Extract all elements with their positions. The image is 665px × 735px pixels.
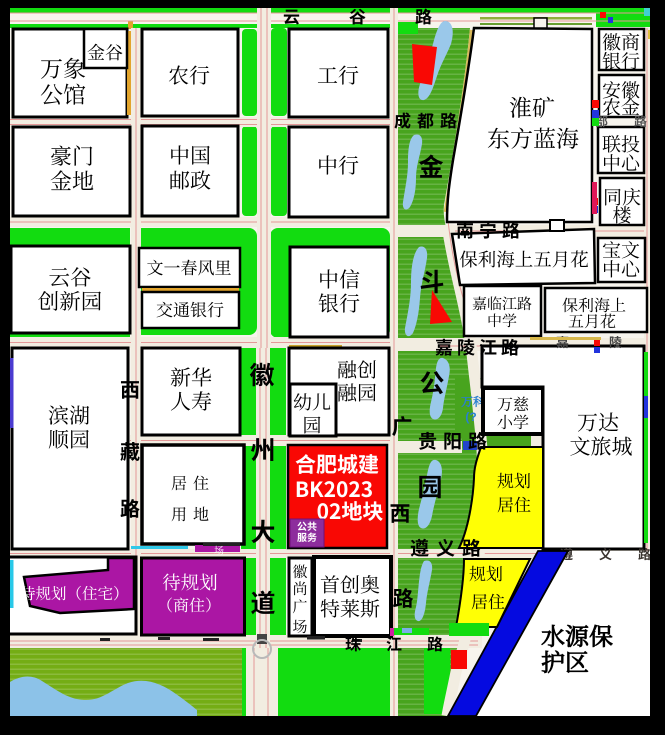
svg-text:公馆: 公馆: [40, 77, 86, 110]
svg-text:嘉陵江路: 嘉陵江路: [435, 334, 523, 360]
svg-text:遵义路: 遵义路: [560, 544, 665, 563]
svg-text:用地: 用地: [171, 502, 215, 525]
svg-text:中行: 中行: [317, 150, 359, 180]
svg-text:遵义路: 遵义路: [410, 534, 488, 561]
svg-text:待规划: 待规划: [162, 569, 218, 595]
svg-text:人寿: 人寿: [170, 386, 212, 416]
svg-text:文旅城: 文旅城: [570, 431, 633, 461]
svg-text:道: 道: [250, 584, 275, 620]
svg-text:藏: 藏: [120, 436, 140, 465]
svg-text:斗: 斗: [419, 263, 444, 299]
svg-text:保利海上五月花: 保利海上五月花: [459, 246, 589, 272]
svg-text:东方蓝海: 东方蓝海: [487, 121, 579, 154]
svg-text:贵阳路: 贵阳路: [418, 427, 493, 454]
svg-text:特莱斯: 特莱斯: [320, 593, 380, 622]
svg-text:居住: 居住: [497, 491, 531, 516]
svg-text:中心: 中心: [602, 255, 641, 282]
svg-text:顺园: 顺园: [48, 424, 90, 454]
svg-text:护区: 护区: [541, 643, 589, 678]
svg-text:楼: 楼: [612, 201, 632, 228]
svg-text:邮政: 邮政: [169, 165, 211, 195]
svg-text:公: 公: [419, 364, 444, 400]
svg-text:待规划（住宅）: 待规划（住宅）: [20, 582, 129, 604]
svg-text:园: 园: [417, 468, 442, 504]
svg-text:02地块: 02地块: [317, 496, 384, 526]
svg-text:西: 西: [390, 498, 411, 528]
svg-text:文一春风里: 文一春风里: [147, 254, 232, 279]
svg-text:西: 西: [120, 374, 140, 403]
svg-text:淮矿: 淮矿: [509, 90, 555, 123]
svg-text:五月花: 五月花: [568, 309, 616, 332]
svg-text:服务: 服务: [297, 529, 317, 544]
svg-text:珠江路: 珠江路: [345, 631, 468, 655]
svg-text:大: 大: [250, 513, 275, 549]
svg-text:州: 州: [250, 431, 275, 467]
svg-text:小学: 小学: [497, 410, 529, 433]
svg-text:银行: 银行: [602, 47, 640, 74]
svg-text:嘉陵: 嘉陵: [556, 332, 662, 351]
svg-text:交通银行: 交通银行: [156, 296, 224, 321]
svg-text:金: 金: [418, 148, 443, 184]
svg-text:农行: 农行: [168, 60, 210, 90]
svg-text:规划: 规划: [469, 560, 503, 585]
svg-text:居住: 居住: [471, 588, 505, 613]
svg-text:规划: 规划: [497, 467, 531, 492]
svg-text:中心: 中心: [602, 149, 641, 176]
svg-text:路: 路: [393, 583, 414, 613]
svg-text:中学: 中学: [487, 310, 517, 331]
svg-text:场: 场: [292, 616, 307, 637]
svg-text:金地: 金地: [50, 165, 94, 196]
svg-text:徽: 徽: [249, 356, 274, 392]
svg-text:成都路: 成都路: [394, 107, 463, 132]
svg-text:场: 场: [214, 542, 224, 557]
svg-text:工行: 工行: [317, 60, 359, 90]
svg-text:创新园: 创新园: [38, 285, 103, 316]
svg-text:居住: 居住: [171, 471, 215, 494]
svg-text:园: 园: [302, 411, 321, 438]
svg-text:南宁路: 南宁路: [456, 217, 525, 243]
svg-text:路: 路: [120, 493, 140, 522]
svg-text:金谷: 金谷: [87, 39, 123, 65]
svg-text:融园: 融园: [337, 377, 377, 406]
svg-text:广: 广: [292, 596, 307, 617]
svg-text:(?: (?: [465, 408, 476, 425]
svg-text:银行: 银行: [318, 288, 360, 318]
svg-text:（商住）: （商住）: [157, 593, 221, 616]
svg-text:广: 广: [392, 411, 413, 441]
